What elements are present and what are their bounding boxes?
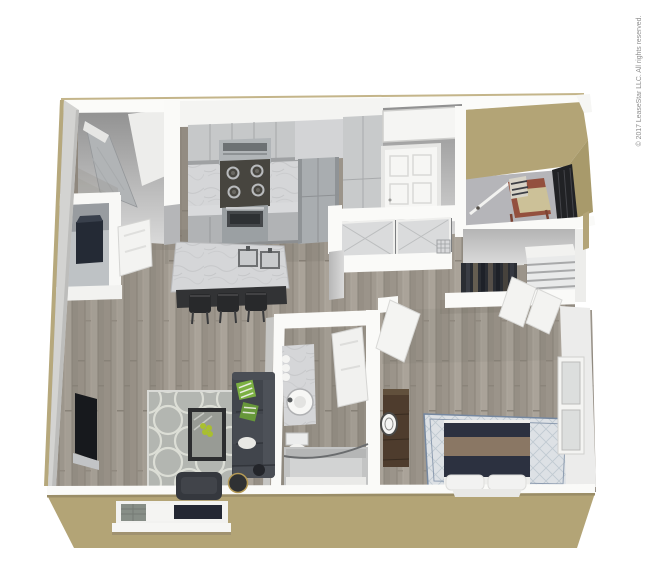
svg-text:© 2017 LeaseStar LLC. All righ: © 2017 LeaseStar LLC. All rights reserve… xyxy=(635,16,643,147)
